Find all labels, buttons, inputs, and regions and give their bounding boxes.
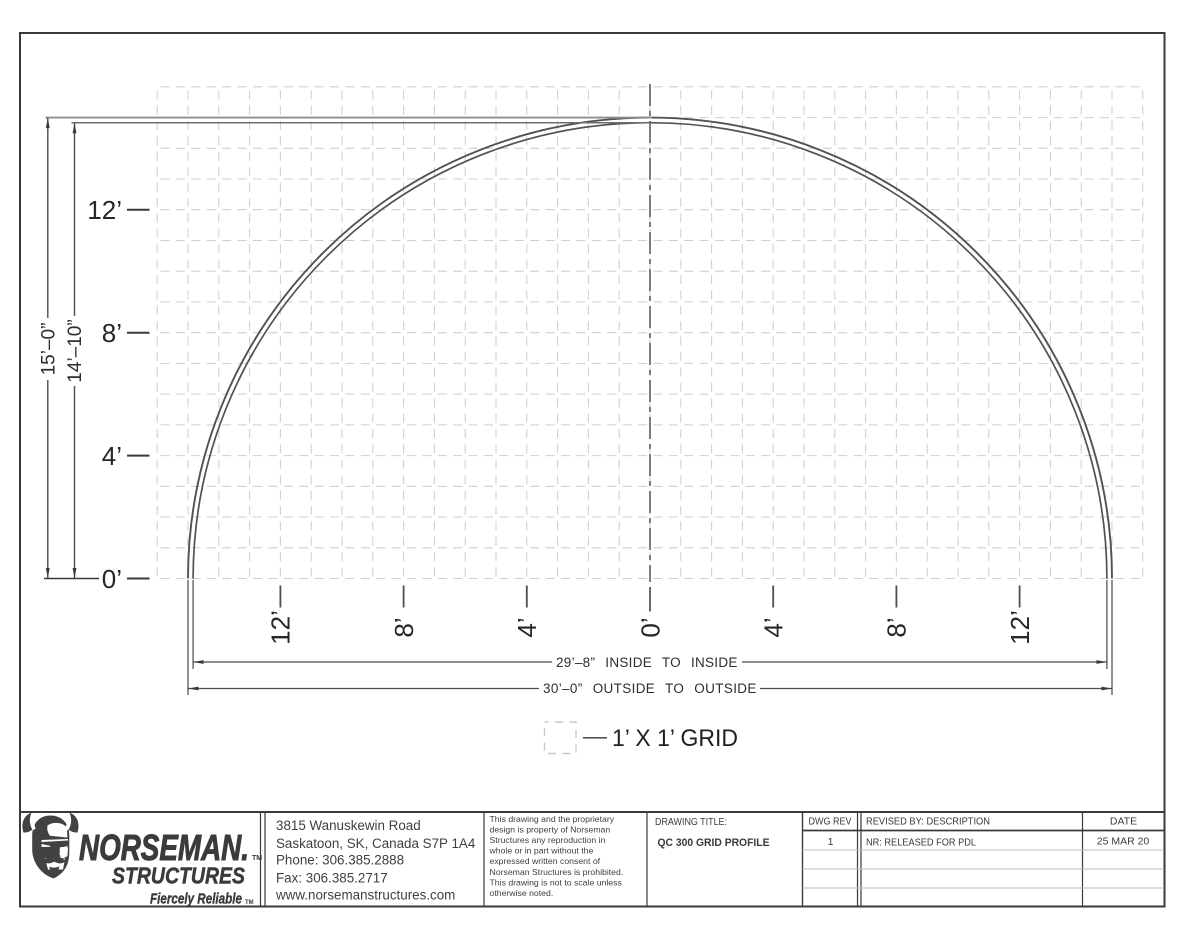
svg-text:Norseman Structures is prohibi: Norseman Structures is prohibited.	[490, 867, 624, 877]
svg-text:Structures any reproduction in: Structures any reproduction in	[490, 835, 606, 845]
svg-text:8’: 8’	[882, 617, 912, 637]
svg-text:www.norsemanstructures.com: www.norsemanstructures.com	[275, 888, 455, 903]
svg-text:Saskatoon, SK, Canada S7P 1A4: Saskatoon, SK, Canada S7P 1A4	[276, 836, 476, 851]
svg-text:30’–0” OUTSIDE TO OUTSIDE: 30’–0” OUTSIDE TO OUTSIDE	[543, 681, 757, 696]
svg-text:Fiercely Reliable: Fiercely Reliable	[150, 891, 242, 908]
svg-text:design is property of Norseman: design is property of Norseman	[490, 824, 611, 834]
svg-text:12’: 12’	[266, 610, 296, 645]
svg-text:1: 1	[828, 836, 834, 848]
svg-text:14’–10”: 14’–10”	[65, 319, 86, 382]
svg-text:QC 300 GRID PROFILE: QC 300 GRID PROFILE	[658, 837, 770, 849]
svg-text:DWG REV: DWG REV	[809, 816, 852, 828]
svg-text:1’ X 1’ GRID: 1’ X 1’ GRID	[612, 725, 738, 752]
svg-text:TM: TM	[245, 900, 254, 906]
svg-text:4’: 4’	[759, 617, 789, 637]
svg-text:0’: 0’	[102, 564, 122, 594]
svg-text:NR: RELEASED FOR PDL: NR: RELEASED FOR PDL	[866, 837, 976, 849]
svg-text:Phone: 306.385.2888: Phone: 306.385.2888	[276, 853, 404, 868]
svg-text:15’–0”: 15’–0”	[38, 323, 59, 376]
svg-text:DRAWING TITLE:: DRAWING TITLE:	[655, 816, 727, 828]
svg-text:25 MAR 20: 25 MAR 20	[1097, 836, 1150, 848]
svg-text:STRUCTURES: STRUCTURES	[112, 863, 245, 889]
svg-text:This drawing is not to scale u: This drawing is not to scale unless	[490, 877, 623, 887]
svg-text:Fax: 306.385.2717: Fax: 306.385.2717	[276, 871, 388, 886]
svg-text:This drawing and the proprieta: This drawing and the proprietary	[490, 814, 615, 824]
svg-text:12’: 12’	[87, 195, 122, 225]
svg-text:3815 Wanuskewin Road: 3815 Wanuskewin Road	[276, 818, 421, 833]
svg-text:otherwise noted.: otherwise noted.	[490, 888, 554, 898]
svg-text:12’: 12’	[1005, 610, 1035, 645]
svg-text:29’–8” INSIDE TO INSIDE: 29’–8” INSIDE TO INSIDE	[556, 655, 738, 670]
svg-text:REVISED BY: DESCRIPTION: REVISED BY: DESCRIPTION	[866, 816, 990, 828]
svg-text:DATE: DATE	[1110, 816, 1137, 828]
svg-text:8’: 8’	[389, 617, 419, 637]
svg-text:expressed written consent of: expressed written consent of	[490, 856, 601, 866]
svg-text:4’: 4’	[102, 441, 122, 471]
svg-text:8’: 8’	[102, 318, 122, 348]
svg-text:4’: 4’	[512, 617, 542, 637]
svg-text:0’: 0’	[635, 617, 665, 637]
svg-text:whole or in part without the: whole or in part without the	[489, 846, 594, 856]
svg-text:TM: TM	[252, 855, 262, 862]
